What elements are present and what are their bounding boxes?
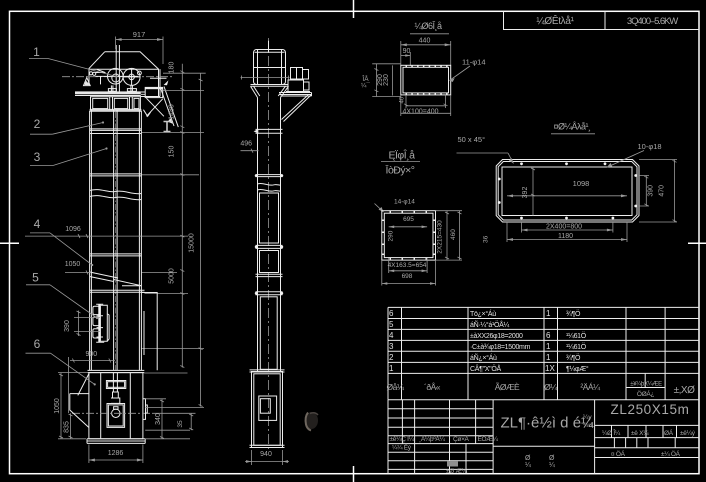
svg-text:15000: 15000 [189, 233, 196, 253]
svg-text:ÖØÁ¿: ÖØÁ¿ [637, 389, 655, 398]
svg-text:Tö¿×°Áù: Tö¿×°Áù [470, 309, 496, 318]
svg-text:¤ ÖÁ: ¤ ÖÁ [611, 449, 626, 458]
svg-text:5: 5 [32, 271, 39, 285]
svg-text:Ø¼: Ø¼ [544, 382, 558, 392]
svg-text:¾¶Ö: ¾¶Ö [566, 354, 581, 362]
svg-text:¸Ä¼þºÅ¼: ¸Ä¼þºÅ¼ [419, 434, 445, 443]
svg-text:ØÁ: ØÁ [664, 428, 674, 437]
svg-text:6: 6 [389, 309, 394, 318]
svg-text:1286: 1286 [108, 450, 124, 457]
svg-text:ĪòÐý×°: ĪòÐý×° [386, 165, 415, 177]
svg-text:496: 496 [240, 141, 252, 148]
svg-text:ÈÕÆ¼: ÈÕÆ¼ [478, 434, 499, 443]
svg-text:698: 698 [402, 273, 413, 280]
svg-text:Çø×Ã: Çø×Ã [453, 434, 470, 443]
svg-text:50 x 45°: 50 x 45° [458, 135, 486, 144]
svg-text:ÃØÆÈ: ÃØÆÈ [495, 382, 520, 392]
svg-text:¼: ¼ [525, 462, 531, 469]
svg-text:2X400=800: 2X400=800 [546, 223, 582, 230]
svg-text:390: 390 [64, 320, 71, 332]
svg-text:¤Ø¼Âλå¹¸: ¤Ø¼Âλå¹¸ [553, 122, 591, 132]
svg-text:Øå¼: Øå¼ [387, 382, 405, 392]
svg-text:1X: 1X [545, 364, 555, 373]
svg-text:835: 835 [64, 421, 71, 433]
svg-text:¼¼ Êý: ¼¼ Êý [392, 443, 412, 452]
svg-text:·C±à¾φ18=1500mm: ·C±à¾φ18=1500mm [470, 344, 531, 351]
svg-text:14-φ14: 14-φ14 [394, 199, 415, 206]
svg-text:1: 1 [33, 45, 40, 59]
svg-text:1180: 1180 [558, 233, 573, 240]
svg-text:695: 695 [403, 216, 414, 223]
svg-text:4X100=400: 4X100=400 [402, 109, 438, 116]
svg-text:1096: 1096 [65, 226, 81, 233]
svg-text:4: 4 [389, 331, 394, 340]
svg-text:2: 2 [34, 117, 41, 131]
svg-text:1098: 1098 [573, 179, 590, 188]
svg-text:CÂ¶"X"ÖÅ: CÂ¶"X"ÖÅ [470, 364, 501, 373]
svg-text:470: 470 [659, 185, 666, 197]
svg-text:±,XØ: ±,XØ [674, 385, 695, 396]
svg-text:¼u: ¼u [583, 422, 592, 429]
svg-text:180: 180 [169, 62, 176, 74]
svg-text:±ê¼ý: ±ê¼ý [680, 430, 696, 437]
svg-text:460: 460 [450, 229, 457, 240]
svg-text:¼: ¼ [549, 462, 555, 469]
svg-text:3: 3 [389, 342, 394, 351]
svg-text:3Q400–5.6KW: 3Q400–5.6KW [627, 16, 678, 27]
svg-text:6: 6 [34, 337, 41, 351]
svg-text:35: 35 [177, 420, 184, 428]
svg-text:340: 340 [155, 413, 162, 425]
svg-text:440: 440 [419, 38, 431, 45]
svg-text:¼y: ¼y [583, 414, 592, 421]
svg-text:2X215=430: 2X215=430 [437, 220, 444, 254]
svg-text:290: 290 [388, 230, 395, 241]
svg-text:90: 90 [403, 48, 411, 55]
svg-text:Ø: Ø [549, 455, 555, 462]
svg-text:¾¶Ö: ¾¶Ö [566, 310, 581, 318]
svg-text:1050: 1050 [54, 398, 61, 414]
svg-text:±¥¼þX¼ÆE: ±¥¼þX¼ÆE [630, 382, 662, 388]
svg-text:áÑ·¼°á¹ÖÅ¼: áÑ·¼°á¹ÖÅ¼ [470, 320, 510, 329]
svg-text:1480: 1480 [169, 104, 176, 120]
svg-text:¼ØÊtλå¹: ¼ØÊtλå¹ [536, 14, 574, 27]
svg-text:6: 6 [546, 331, 551, 340]
svg-text:11-φ14: 11-φ14 [462, 58, 486, 67]
svg-text:±ê X¼: ±ê X¼ [631, 430, 649, 437]
svg-text:ĘΪφÎ¸å: ĘΪφÎ¸å [389, 149, 416, 162]
svg-text:3: 3 [34, 150, 41, 164]
svg-text:¼Ø6Î¸å: ¼Ø6Î¸å [414, 21, 442, 31]
svg-text:5000: 5000 [169, 268, 176, 284]
svg-text:áÑ¿×°Áù: áÑ¿×°Áù [470, 353, 497, 362]
svg-text:1: 1 [546, 342, 551, 351]
svg-text:´ðÅ«: ´ðÅ« [424, 382, 441, 392]
svg-text:±àXX26φ18=2000: ±àXX26φ18=2000 [470, 333, 523, 340]
svg-text:¼Ø Î¼: ¼Ø Î¼ [602, 428, 621, 437]
svg-text:¹¼61Ö: ¹¼61Ö [566, 332, 587, 340]
svg-text:390: 390 [648, 185, 655, 197]
svg-text:1: 1 [546, 353, 551, 362]
svg-text:Ø: Ø [525, 455, 531, 462]
svg-text:40: 40 [400, 96, 406, 103]
svg-text:ZL¶·ê½ì d é¼: ZL¶·ê½ì d é¼ [500, 415, 594, 432]
svg-text:1050: 1050 [65, 261, 81, 268]
svg-text:¶¼φÆ°: ¶¼φÆ° [566, 365, 589, 373]
svg-text:36: 36 [483, 235, 490, 243]
svg-text:900: 900 [85, 351, 97, 358]
svg-text:±Ø Æ¼: ±Ø Æ¼ [446, 468, 468, 475]
svg-text:4: 4 [34, 217, 41, 231]
svg-text:5: 5 [389, 320, 394, 329]
svg-text:940: 940 [260, 451, 272, 458]
svg-text:917: 917 [133, 30, 146, 39]
svg-text:2: 2 [389, 353, 394, 362]
svg-text:10-φ18: 10-φ18 [638, 142, 662, 151]
svg-text:392: 392 [522, 187, 529, 199]
svg-text:²ÄÁ¼: ²ÄÁ¼ [580, 382, 601, 392]
svg-text:1: 1 [389, 364, 394, 373]
svg-text:230: 230 [383, 74, 390, 86]
svg-text:±¼ ÖÁ: ±¼ ÖÁ [661, 449, 681, 458]
svg-text:4X163.5=654: 4X163.5=654 [388, 262, 427, 269]
svg-text:±ê¼Ç Î¼: ±ê¼Ç Î¼ [390, 434, 415, 443]
svg-text:150: 150 [169, 146, 176, 158]
svg-text:¹¼61Ö: ¹¼61Ö [566, 343, 587, 351]
svg-text:¼¯: ¼¯ [361, 82, 370, 90]
svg-text:ZL250X15m: ZL250X15m [611, 402, 690, 417]
svg-text:1: 1 [546, 309, 551, 318]
